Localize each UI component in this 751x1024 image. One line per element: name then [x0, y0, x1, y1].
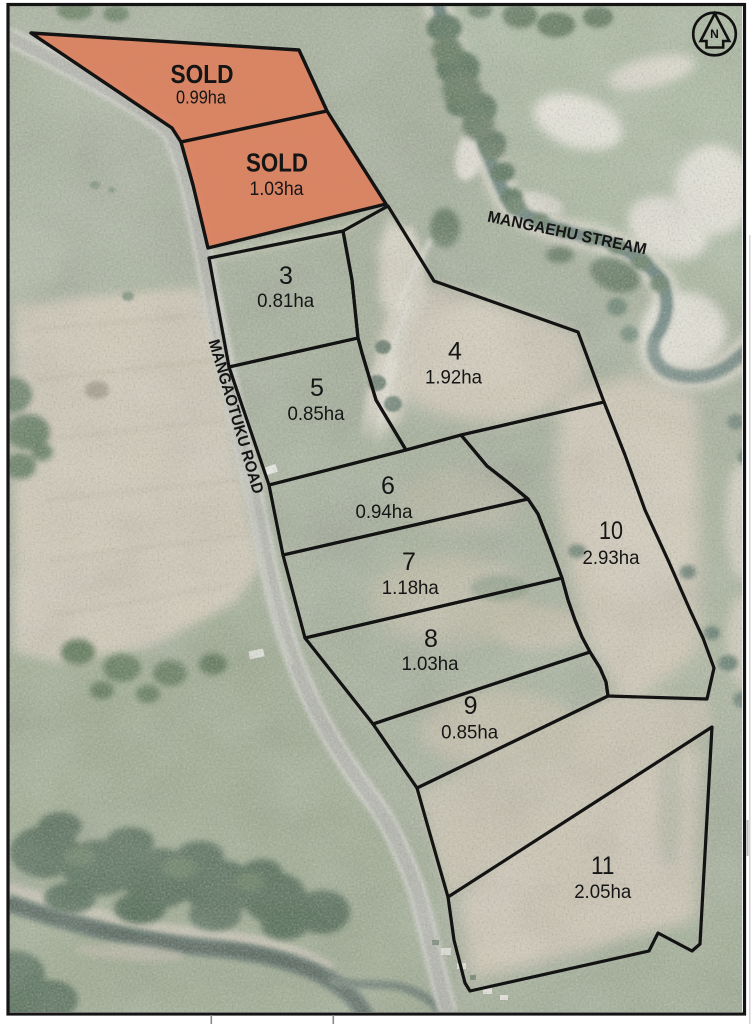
svg-text:1.03ha: 1.03ha [250, 179, 304, 200]
svg-text:6: 6 [381, 472, 395, 500]
svg-text:0.99ha: 0.99ha [176, 88, 227, 108]
svg-text:5: 5 [310, 374, 324, 402]
svg-text:0.94ha: 0.94ha [356, 501, 413, 523]
svg-text:11: 11 [591, 852, 615, 880]
svg-text:0.85ha: 0.85ha [288, 403, 345, 425]
svg-text:1.03ha: 1.03ha [402, 653, 459, 675]
svg-text:2.93ha: 2.93ha [583, 547, 640, 569]
svg-text:2.05ha: 2.05ha [574, 881, 631, 903]
svg-text:1.92ha: 1.92ha [425, 367, 482, 389]
svg-text:0.85ha: 0.85ha [441, 722, 498, 744]
svg-text:SOLD: SOLD [246, 148, 308, 178]
svg-text:N: N [710, 27, 719, 41]
svg-text:0.81ha: 0.81ha [257, 290, 314, 312]
svg-text:1.18ha: 1.18ha [382, 577, 439, 599]
svg-text:SOLD: SOLD [171, 59, 234, 89]
svg-text:8: 8 [424, 625, 438, 653]
svg-text:7: 7 [402, 548, 416, 576]
svg-text:10: 10 [599, 517, 623, 545]
svg-text:9: 9 [464, 692, 478, 720]
svg-text:4: 4 [448, 338, 462, 366]
svg-text:3: 3 [279, 262, 293, 290]
